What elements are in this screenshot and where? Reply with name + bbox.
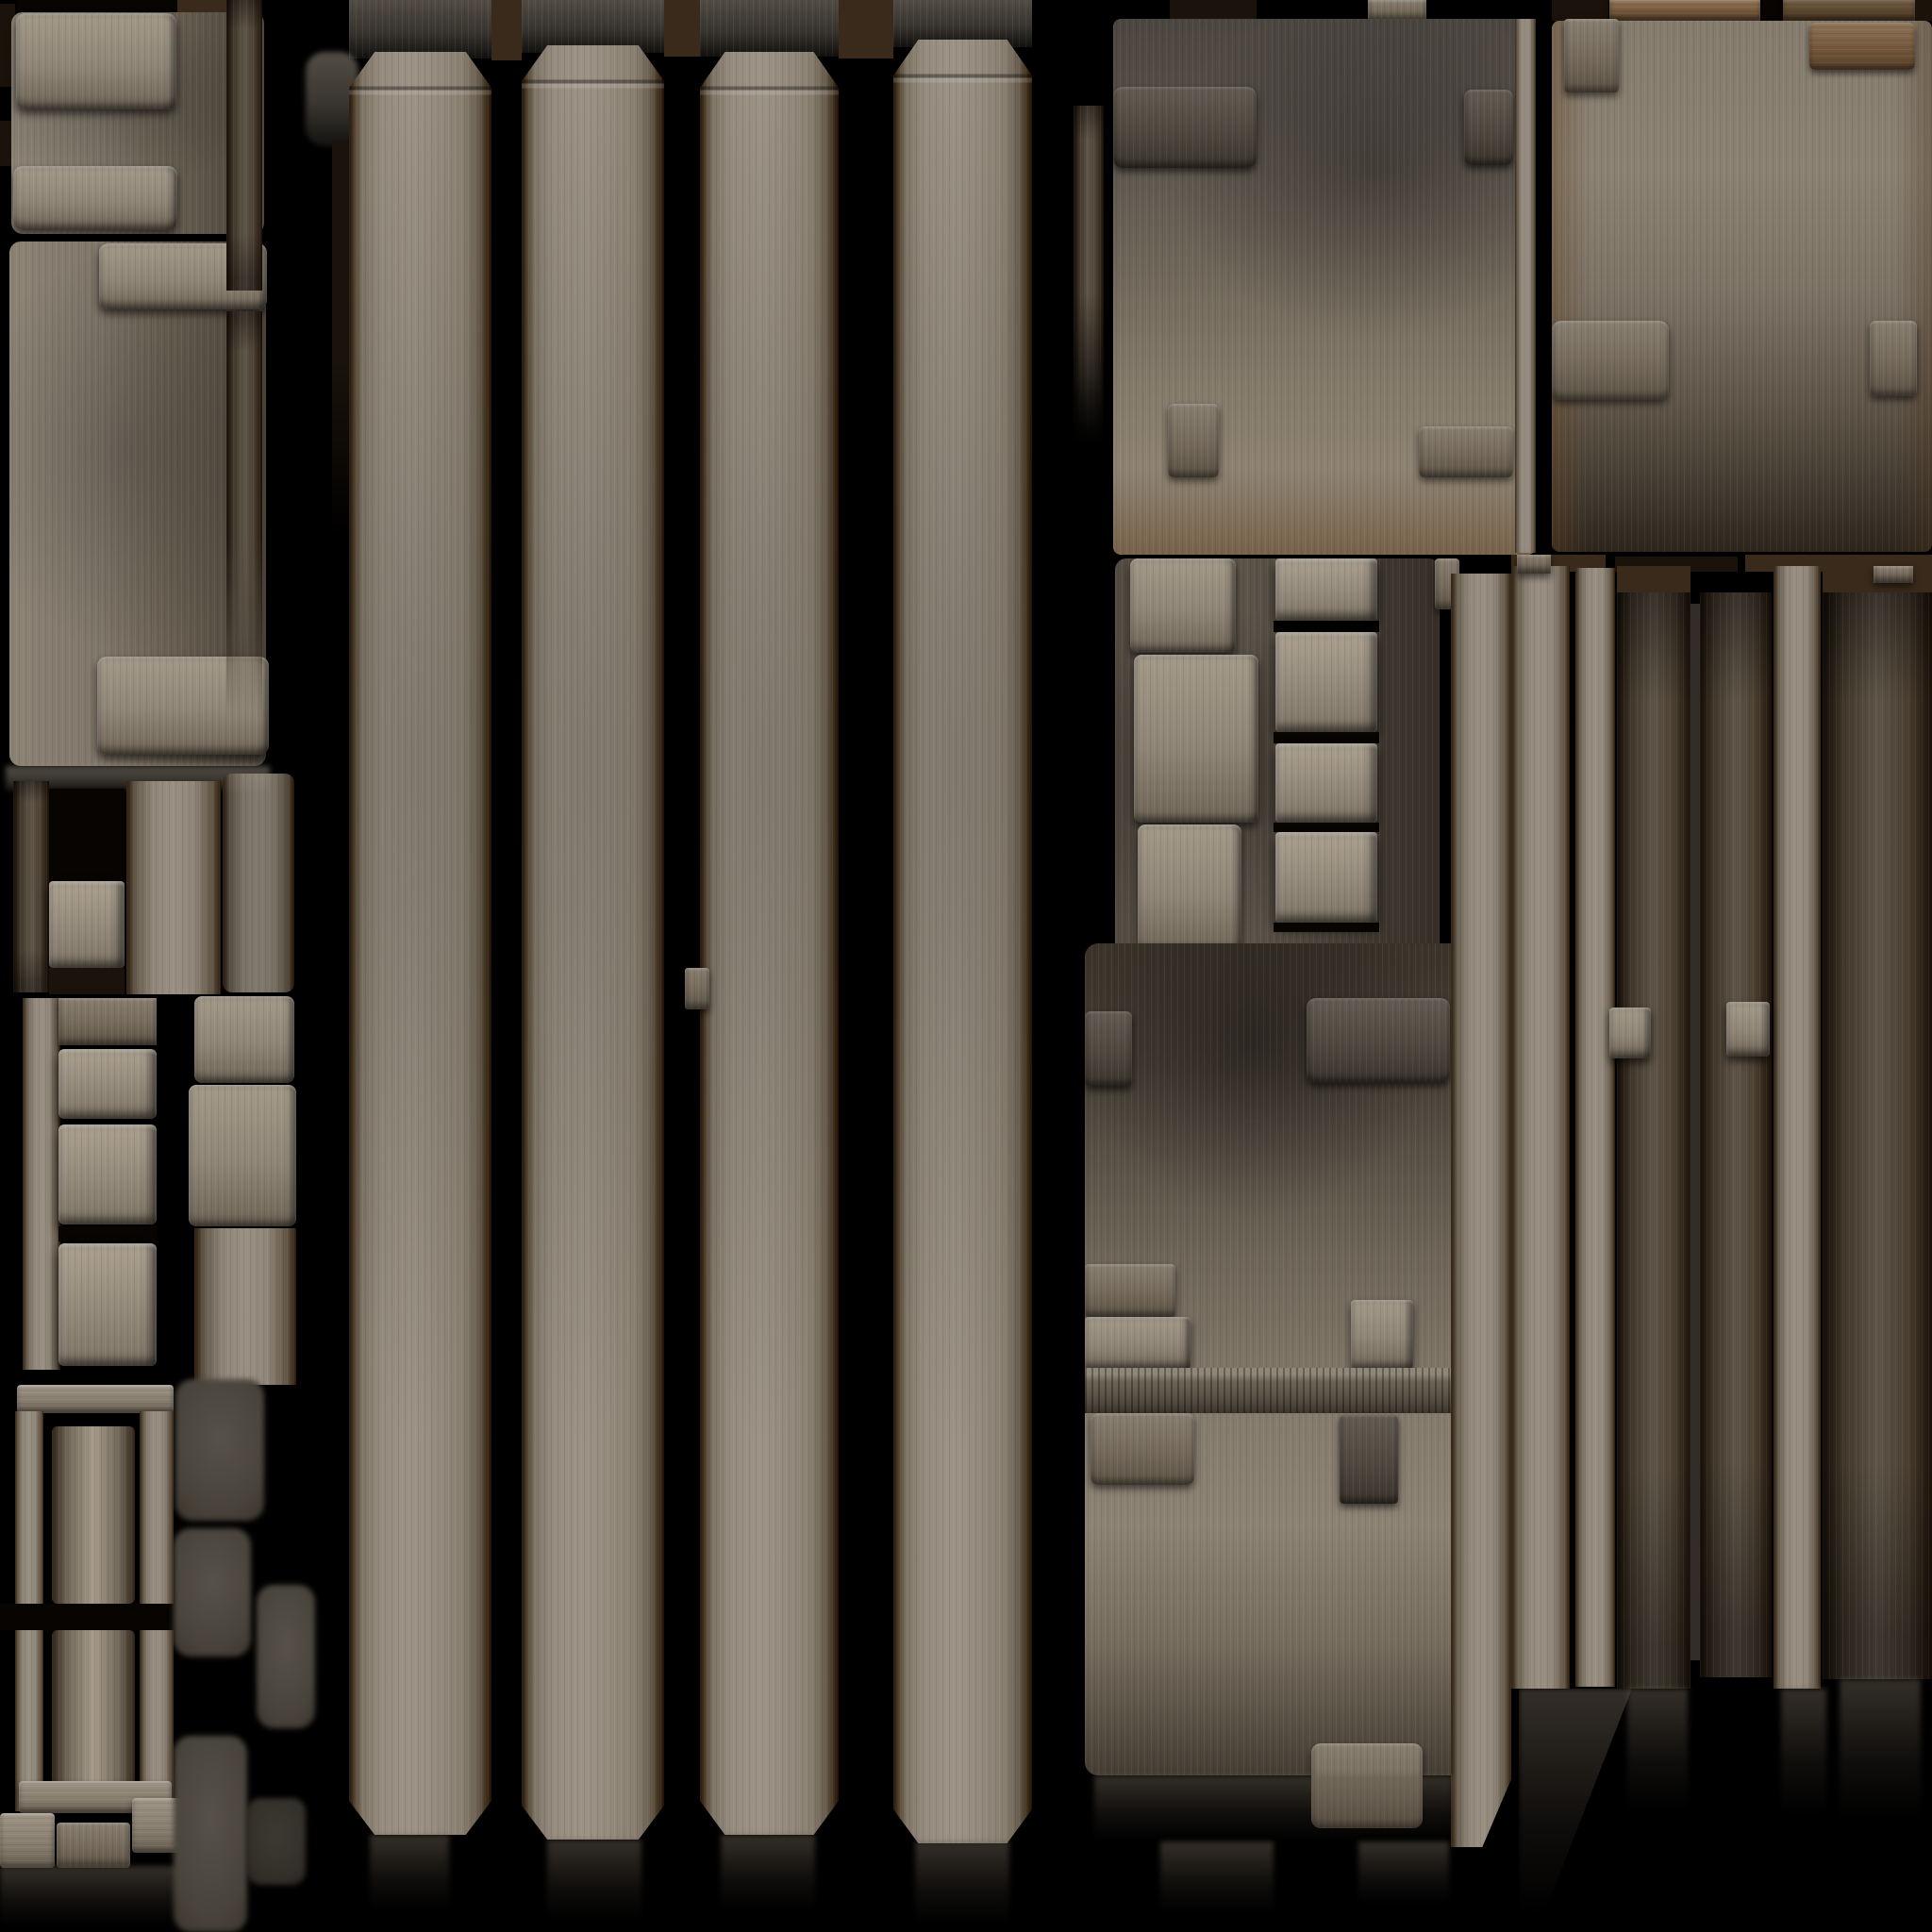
ladder2-rung-top xyxy=(58,998,157,1045)
right-plank-tab xyxy=(1874,566,1913,583)
ladder2-block xyxy=(194,996,294,1083)
top-mid-edge-bit xyxy=(1170,0,1257,19)
ladder2-rung xyxy=(58,1124,157,1224)
frame-foot xyxy=(57,1823,130,1868)
shadow-blob xyxy=(247,1798,306,1885)
right-ghost-tail xyxy=(1519,1689,1632,1915)
texture-atlas xyxy=(0,0,1932,1932)
top-right-edge-bit xyxy=(1552,0,1608,21)
right-plank-light xyxy=(1774,566,1821,1689)
narrow-plank-right xyxy=(1074,106,1104,445)
bottom-mid-cap xyxy=(1091,1413,1194,1485)
bottom-mid-right-strip xyxy=(1451,943,1511,1847)
plank-ghost-tail xyxy=(721,1835,815,1910)
top-mid-block xyxy=(1168,404,1219,477)
ladder1-rung xyxy=(49,881,125,968)
bottom-mid-step xyxy=(1085,1264,1175,1317)
top-right-block xyxy=(1870,321,1917,396)
mid-ladder-rung xyxy=(1275,558,1377,621)
top-mid-tab xyxy=(1113,87,1257,168)
mid-ladder-block xyxy=(1138,824,1241,953)
panel-a-tab xyxy=(13,166,177,230)
tl-top-strip-black xyxy=(17,0,177,13)
plank-ghost-top xyxy=(522,0,664,53)
top-right-edge-bit xyxy=(1609,0,1760,21)
frame-foot xyxy=(0,1813,55,1868)
top-right-step xyxy=(1564,19,1619,92)
center-plank xyxy=(893,40,1032,1843)
mid-ladder-rung xyxy=(1275,743,1377,823)
shadow-blob xyxy=(175,1379,264,1521)
top-mid-tab xyxy=(1464,90,1513,165)
right-plank-dark xyxy=(1700,592,1772,1677)
plank-ghost-top xyxy=(700,0,839,57)
shadow-blob xyxy=(257,1585,315,1728)
right-plank-light xyxy=(1451,574,1511,955)
top-mid-edge-bit xyxy=(1368,0,1426,21)
bottom-mid-bar xyxy=(1085,1368,1474,1413)
top-mid-block xyxy=(1419,426,1513,477)
right-plank-dark xyxy=(1617,592,1690,1689)
frame-cylinder xyxy=(52,1426,135,1604)
ladder1-hole xyxy=(49,789,125,881)
bottom-mid-tail xyxy=(1160,1841,1274,1913)
plank-ghost-top xyxy=(349,0,491,58)
mid-ladder-gap xyxy=(1274,732,1379,743)
narrow-post xyxy=(226,311,262,717)
right-ghost-tail xyxy=(1627,1689,1688,1811)
right-plank-tab xyxy=(1517,555,1551,574)
bottom-mid-tab xyxy=(1307,998,1450,1083)
center-plank xyxy=(522,45,664,1840)
bottom-mid-step xyxy=(1351,1300,1413,1370)
top-right-panel xyxy=(1552,21,1932,552)
top-right-edge-bit xyxy=(1915,0,1932,21)
ladder2-block xyxy=(194,1228,296,1385)
frame-cylinder xyxy=(52,1630,135,1785)
gap-connector xyxy=(685,968,709,1009)
panel-a-tab xyxy=(16,13,176,109)
plank-ghost-tail xyxy=(547,1840,641,1921)
mid-ladder-gap xyxy=(1274,621,1379,632)
ladder2-block xyxy=(189,1085,296,1226)
ladder1-plank xyxy=(126,781,221,994)
right-plank-tab xyxy=(1609,1008,1651,1058)
narrow-post xyxy=(226,0,262,291)
frame-cap-top xyxy=(17,1385,174,1413)
plank-ghost-tail xyxy=(370,1835,449,1910)
top-right-tab xyxy=(1809,23,1915,70)
mid-ladder-block xyxy=(1134,655,1258,823)
right-ghost-tail xyxy=(1781,1689,1826,1815)
bottom-mid-block xyxy=(1085,1011,1132,1087)
mid-ladder-rung xyxy=(1275,632,1377,732)
ladder2-rail xyxy=(23,998,60,1370)
shadow-blob xyxy=(174,1736,247,1932)
bottom-mid-tail xyxy=(1358,1841,1449,1904)
ladder2-rung xyxy=(58,1243,157,1366)
ladder2-gap xyxy=(58,1226,157,1241)
bottom-mid-notch xyxy=(1340,1415,1398,1504)
right-plank-dark xyxy=(1823,592,1932,1679)
ladder2-rung xyxy=(58,1049,157,1119)
top-right-edge-bit xyxy=(1783,0,1915,21)
bottom-mid-step xyxy=(1085,1317,1191,1370)
mid-ladder-rung xyxy=(1275,832,1377,923)
shadow-blob xyxy=(174,1528,251,1657)
center-plank xyxy=(700,52,839,1835)
center-plank xyxy=(349,52,491,1835)
plank-gap-cap xyxy=(839,0,893,58)
ladder1-plank xyxy=(223,774,294,992)
frame-ghost xyxy=(0,1866,198,1926)
right-plank-light xyxy=(1575,568,1615,1687)
plank-gap-cap xyxy=(664,0,700,57)
mid-ladder-gap xyxy=(1274,923,1379,932)
top-mid-right-strip xyxy=(1515,19,1536,553)
plank-ghost-tail xyxy=(915,1841,1009,1924)
mid-ladder-block xyxy=(1130,558,1236,653)
frame-black-band xyxy=(0,1604,175,1630)
mid-ladder-gap xyxy=(1274,823,1379,832)
ladder1-under xyxy=(49,968,125,994)
right-plank-light xyxy=(1511,566,1570,1689)
right-gap-sliver xyxy=(1690,604,1700,1660)
ladder1-post xyxy=(13,781,49,992)
top-right-rect xyxy=(1552,321,1669,400)
top-right-edge-bit xyxy=(1762,0,1783,21)
right-ghost-tail xyxy=(1840,1679,1921,1821)
right-plank-tab xyxy=(1726,1002,1770,1057)
bottom-mid-ghost xyxy=(1094,1775,1453,1841)
plank-gap-cap xyxy=(491,0,522,60)
